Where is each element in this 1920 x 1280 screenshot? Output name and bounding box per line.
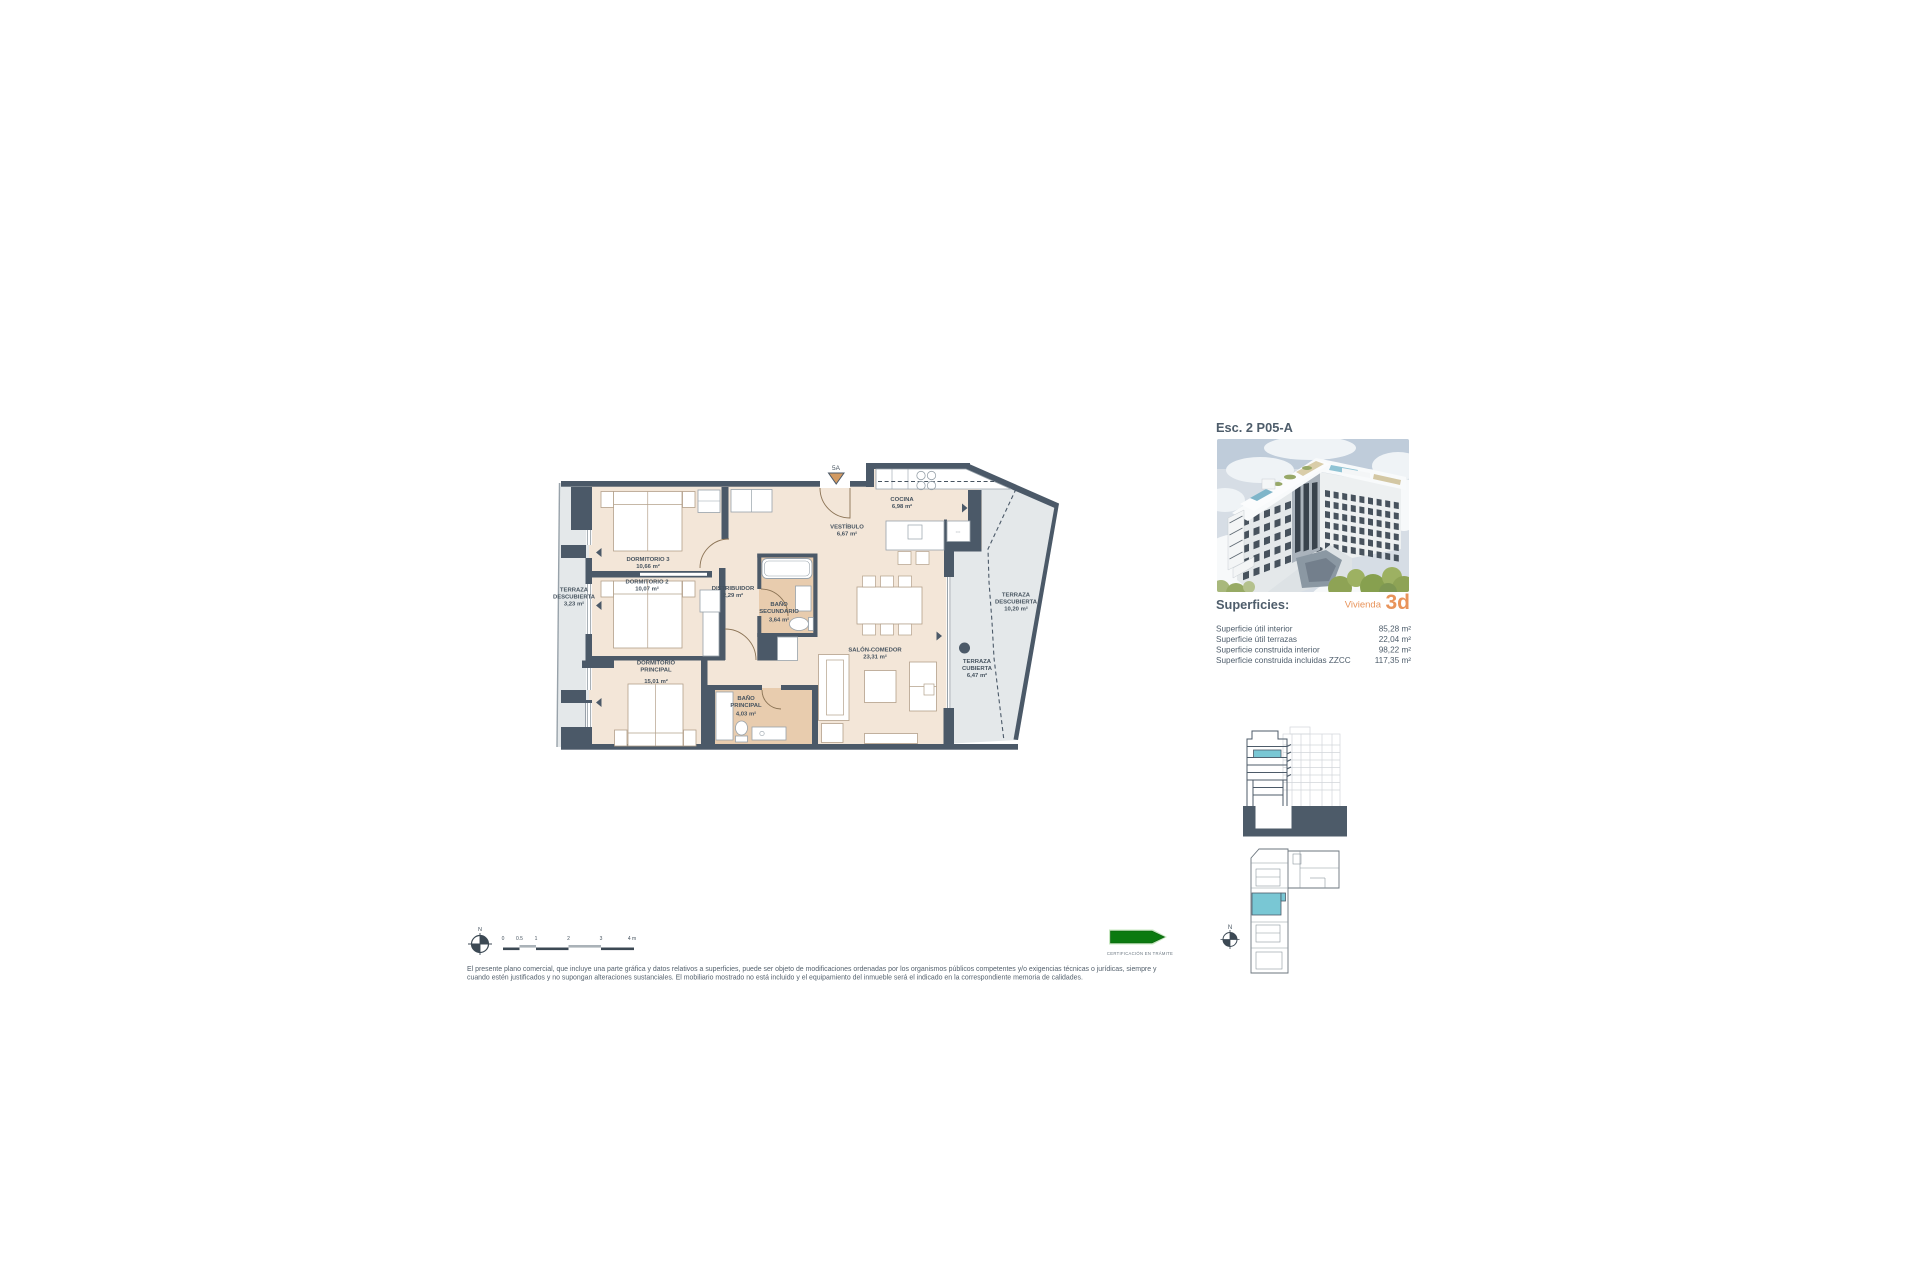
svg-text:Vivienda: Vivienda <box>1345 600 1382 611</box>
svg-text:Superficie construida incluida: Superficie construida incluidas ZZCC <box>1216 656 1351 665</box>
svg-text:SALÓN-COMEDOR: SALÓN-COMEDOR <box>848 646 902 654</box>
svg-text:6,67 m²: 6,67 m² <box>837 531 857 538</box>
svg-text:98,22 m²: 98,22 m² <box>1379 646 1412 655</box>
svg-text:2,29 m²: 2,29 m² <box>723 592 743 599</box>
svg-text:10,07 m²: 10,07 m² <box>635 586 659 593</box>
svg-text:85,28 m²: 85,28 m² <box>1379 624 1412 633</box>
svg-text:DORMITORIO 2: DORMITORIO 2 <box>625 580 669 586</box>
svg-text:PRINCIPAL: PRINCIPAL <box>640 668 672 674</box>
svg-text:BAÑO: BAÑO <box>770 601 788 608</box>
svg-text:El presente plano comercial, q: El presente plano comercial, que incluye… <box>467 966 1157 973</box>
svg-text:SECUNDARIO: SECUNDARIO <box>759 609 799 615</box>
svg-text:Superficies:: Superficies: <box>1216 597 1289 612</box>
svg-text:CERTIFICACIÓN EN TRÁMITE: CERTIFICACIÓN EN TRÁMITE <box>1107 951 1173 956</box>
svg-text:10,20 m²: 10,20 m² <box>1004 606 1028 613</box>
svg-text:Superficie útil interior: Superficie útil interior <box>1216 624 1293 633</box>
svg-text:==: == <box>956 529 961 534</box>
svg-text:cuando estén justificados y no: cuando estén justificados y no supongan … <box>467 975 1083 982</box>
svg-text:4 m: 4 m <box>628 936 636 942</box>
svg-text:3d: 3d <box>1385 591 1410 614</box>
svg-text:3: 3 <box>600 936 603 942</box>
svg-text:TERRAZA: TERRAZA <box>560 588 589 594</box>
svg-text:117,35 m²: 117,35 m² <box>1375 656 1412 665</box>
svg-text:0.5: 0.5 <box>516 936 523 942</box>
svg-text:DESCUBIERTA: DESCUBIERTA <box>553 595 596 601</box>
svg-text:2: 2 <box>567 936 570 942</box>
svg-text:6,47 m²: 6,47 m² <box>967 672 987 679</box>
svg-text:Esc. 2 P05-A: Esc. 2 P05-A <box>1216 420 1293 435</box>
svg-text:DORMITORIO 3: DORMITORIO 3 <box>626 557 670 563</box>
svg-text:TERRAZA: TERRAZA <box>963 659 992 665</box>
svg-text:COCINA: COCINA <box>890 497 914 503</box>
svg-text:PRINCIPAL: PRINCIPAL <box>730 703 762 709</box>
svg-text:1: 1 <box>535 936 538 942</box>
svg-text:3,64 m²: 3,64 m² <box>769 617 789 624</box>
svg-text:DORMITORIO: DORMITORIO <box>637 661 676 667</box>
svg-text:N: N <box>478 927 482 933</box>
svg-text:DISTRIBUIDOR: DISTRIBUIDOR <box>712 586 755 592</box>
svg-text:3,23 m²: 3,23 m² <box>564 601 584 608</box>
svg-text:22,04 m²: 22,04 m² <box>1379 635 1412 644</box>
svg-text:Superficie construida interior: Superficie construida interior <box>1216 646 1320 655</box>
svg-text:CUBIERTA: CUBIERTA <box>962 666 993 672</box>
svg-text:5A: 5A <box>832 465 841 472</box>
svg-text:4,03 m²: 4,03 m² <box>736 711 756 718</box>
svg-text:0: 0 <box>502 936 505 942</box>
svg-text:TERRAZA: TERRAZA <box>1002 593 1031 599</box>
svg-text:BAÑO: BAÑO <box>737 695 755 702</box>
svg-text:Superficie útil terrazas: Superficie útil terrazas <box>1216 635 1297 644</box>
svg-text:23,31 m²: 23,31 m² <box>863 654 887 661</box>
svg-text:15,01 m²: 15,01 m² <box>644 678 668 685</box>
svg-text:VESTÍBULO: VESTÍBULO <box>830 523 864 531</box>
svg-text:6,98 m²: 6,98 m² <box>892 503 912 510</box>
svg-text:10,66 m²: 10,66 m² <box>636 563 660 570</box>
svg-text:DESCUBIERTA: DESCUBIERTA <box>995 600 1038 606</box>
